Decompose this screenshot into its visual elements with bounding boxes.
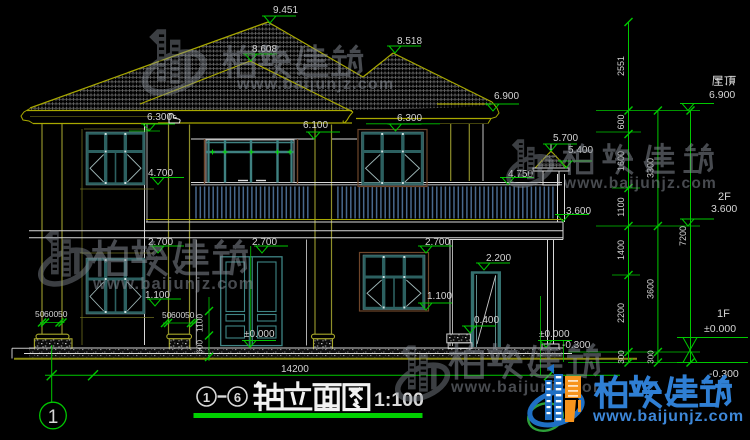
svg-text:2551: 2551	[616, 56, 626, 76]
svg-text:600: 600	[44, 309, 58, 319]
svg-text:6.100: 6.100	[303, 120, 328, 131]
svg-text:8.518: 8.518	[397, 36, 422, 47]
svg-text:2200: 2200	[616, 303, 626, 323]
svg-text:1400: 1400	[616, 240, 626, 260]
svg-text:1: 1	[203, 390, 210, 405]
svg-text:www.baijunjz.com: www.baijunjz.com	[592, 408, 744, 425]
svg-text:14200: 14200	[281, 364, 309, 375]
svg-text:300: 300	[647, 350, 656, 364]
svg-text:±0.000: ±0.000	[704, 323, 736, 335]
svg-text:600: 600	[171, 310, 185, 320]
svg-text:6.300: 6.300	[397, 113, 422, 124]
svg-text:6: 6	[234, 390, 241, 405]
svg-text:6.900: 6.900	[494, 91, 519, 102]
svg-text:1F: 1F	[717, 308, 730, 320]
svg-text:3600: 3600	[646, 279, 656, 299]
svg-text:7200: 7200	[678, 226, 688, 246]
svg-text:±0.000: ±0.000	[244, 329, 275, 340]
svg-text:50: 50	[185, 310, 195, 320]
svg-text:1: 1	[48, 407, 59, 428]
svg-text:1100: 1100	[195, 314, 205, 333]
svg-text:www.baijunjz.com: www.baijunjz.com	[563, 175, 717, 192]
svg-text:www.baijunjz.com: www.baijunjz.com	[92, 275, 255, 293]
svg-text:3.600: 3.600	[711, 203, 737, 215]
svg-text:2.200: 2.200	[486, 253, 511, 264]
svg-text:0.400: 0.400	[474, 315, 499, 326]
svg-text:www.baijunjz.com: www.baijunjz.com	[450, 379, 608, 396]
svg-text:300: 300	[617, 350, 626, 364]
svg-text:2F: 2F	[718, 191, 731, 203]
svg-text:www.baijunjz.com: www.baijunjz.com	[236, 76, 394, 93]
svg-text:600: 600	[195, 340, 205, 354]
svg-text:600: 600	[616, 114, 626, 129]
svg-text:3.600: 3.600	[566, 206, 591, 217]
svg-text:50: 50	[58, 309, 68, 319]
svg-text:5.700: 5.700	[553, 133, 578, 144]
svg-text:6.900: 6.900	[709, 89, 735, 101]
svg-text:1.100: 1.100	[427, 291, 452, 302]
svg-text:±0.000: ±0.000	[539, 329, 570, 340]
svg-text:9.451: 9.451	[273, 5, 298, 16]
svg-text:1100: 1100	[616, 197, 626, 216]
